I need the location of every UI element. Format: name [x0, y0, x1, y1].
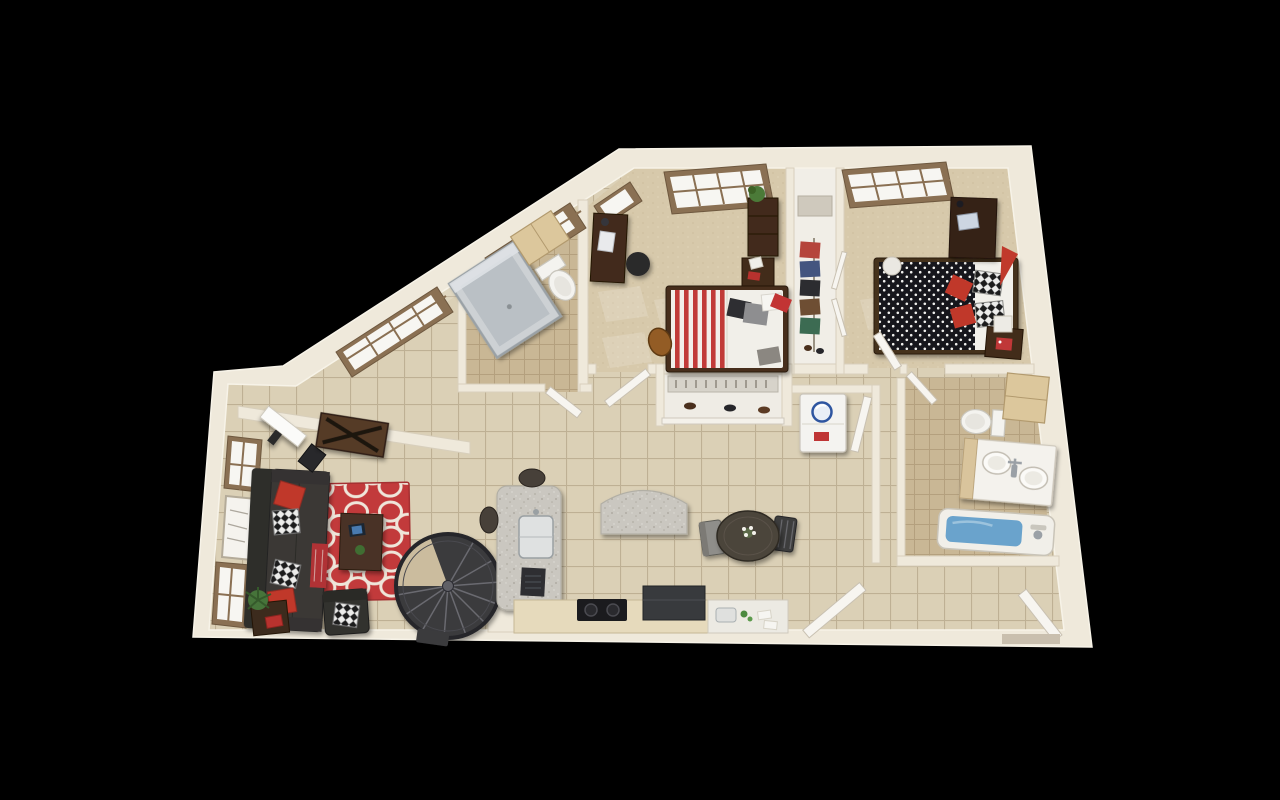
bed-striped	[666, 286, 788, 372]
stair-pole	[443, 581, 454, 592]
shoes	[684, 403, 696, 410]
burner	[585, 604, 597, 616]
floorplan-render	[0, 0, 1280, 800]
laptop	[598, 231, 615, 252]
burner	[607, 604, 619, 616]
bathroom-cabinet	[1003, 373, 1050, 423]
range-unit	[643, 586, 705, 620]
red-throw	[310, 543, 328, 588]
laundry-closet	[800, 394, 846, 452]
wall-bathroom2-south	[897, 556, 1059, 566]
sliding-door-track	[662, 418, 784, 424]
closet-shoes	[804, 345, 812, 351]
wall-laundry-north	[792, 385, 880, 393]
red-poster	[996, 337, 1013, 350]
coffee-table	[339, 513, 383, 570]
pillow-patterned	[333, 602, 360, 627]
wall-shoecloset-east	[782, 364, 792, 426]
shoes	[758, 407, 770, 414]
breakfast-bar	[601, 491, 687, 535]
desk-lamp	[601, 218, 609, 226]
picture-frame	[749, 257, 763, 270]
produce	[741, 611, 748, 618]
kitchen-sink	[716, 608, 736, 622]
produce	[748, 617, 753, 622]
bar-stool	[480, 507, 498, 533]
hanging-clothes	[800, 317, 821, 334]
hanging-clothes	[799, 298, 820, 315]
sunlight-patch	[598, 286, 648, 322]
wall-shoecloset-west	[656, 364, 664, 426]
sunlight-patch	[602, 332, 652, 368]
pillow-patterned	[973, 270, 1004, 296]
dish	[758, 610, 772, 620]
wall-bedroom1-south-stub	[588, 364, 596, 374]
dish	[764, 620, 778, 629]
table-plant	[355, 545, 365, 555]
wall-bedroom2-south-a	[844, 364, 868, 374]
shoe-shelf	[668, 376, 778, 392]
kitchen-island	[497, 486, 561, 610]
wall-bathroom1-south-stub	[580, 384, 592, 392]
double-vanity	[960, 438, 1057, 506]
striped-blanket	[671, 290, 727, 368]
white-hat	[883, 257, 901, 275]
armchair	[323, 589, 370, 636]
desk-chair	[626, 252, 650, 276]
pillow-patterned	[272, 509, 300, 535]
red-book	[748, 271, 761, 281]
island-faucet	[533, 509, 539, 515]
detergent-box	[814, 432, 829, 441]
hanging-clothes	[799, 241, 820, 258]
hanging-clothes	[800, 260, 821, 277]
dresser	[949, 197, 997, 259]
shoes	[724, 405, 736, 412]
closet-shelf-box	[798, 196, 832, 216]
bedroom2-window	[842, 162, 954, 208]
faucet	[1011, 464, 1018, 477]
wall-bathroom1-south	[458, 384, 545, 392]
laptop	[957, 213, 979, 231]
pillow-patterned	[270, 559, 301, 588]
bedroom1-nightstand	[742, 257, 774, 286]
floorplan-stage	[0, 0, 1280, 800]
dining-table	[717, 511, 779, 561]
hanging-clothes	[800, 279, 821, 296]
bar-stool	[519, 469, 545, 487]
bathtub	[937, 508, 1056, 556]
red-book	[265, 615, 283, 629]
wall-bathroom2-west	[897, 378, 905, 556]
storage-cube	[994, 316, 1012, 332]
wall-bedroom2-south-c	[945, 364, 1034, 374]
closet-shoes	[816, 348, 824, 354]
wall-hall-east	[872, 385, 880, 563]
front-door-threshold	[1002, 634, 1060, 644]
dresser-item	[957, 201, 964, 208]
